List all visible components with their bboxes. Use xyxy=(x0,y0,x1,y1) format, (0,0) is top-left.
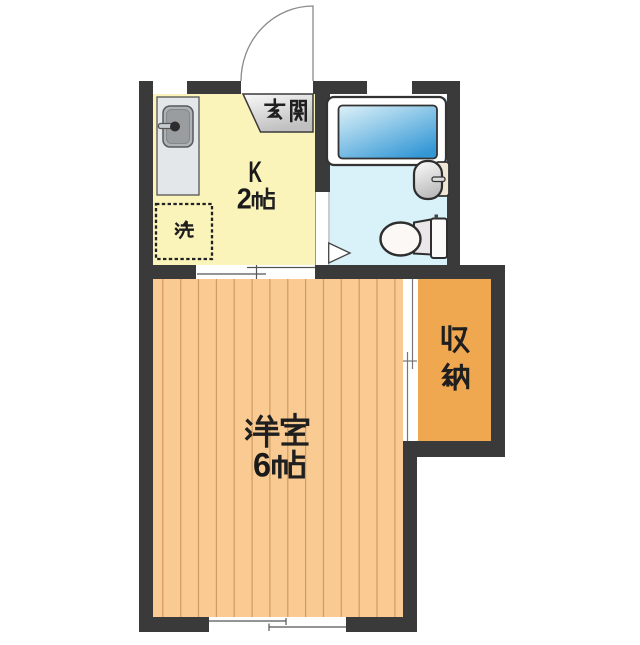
svg-text:2: 2 xyxy=(237,184,252,216)
svg-text:6: 6 xyxy=(253,447,271,485)
